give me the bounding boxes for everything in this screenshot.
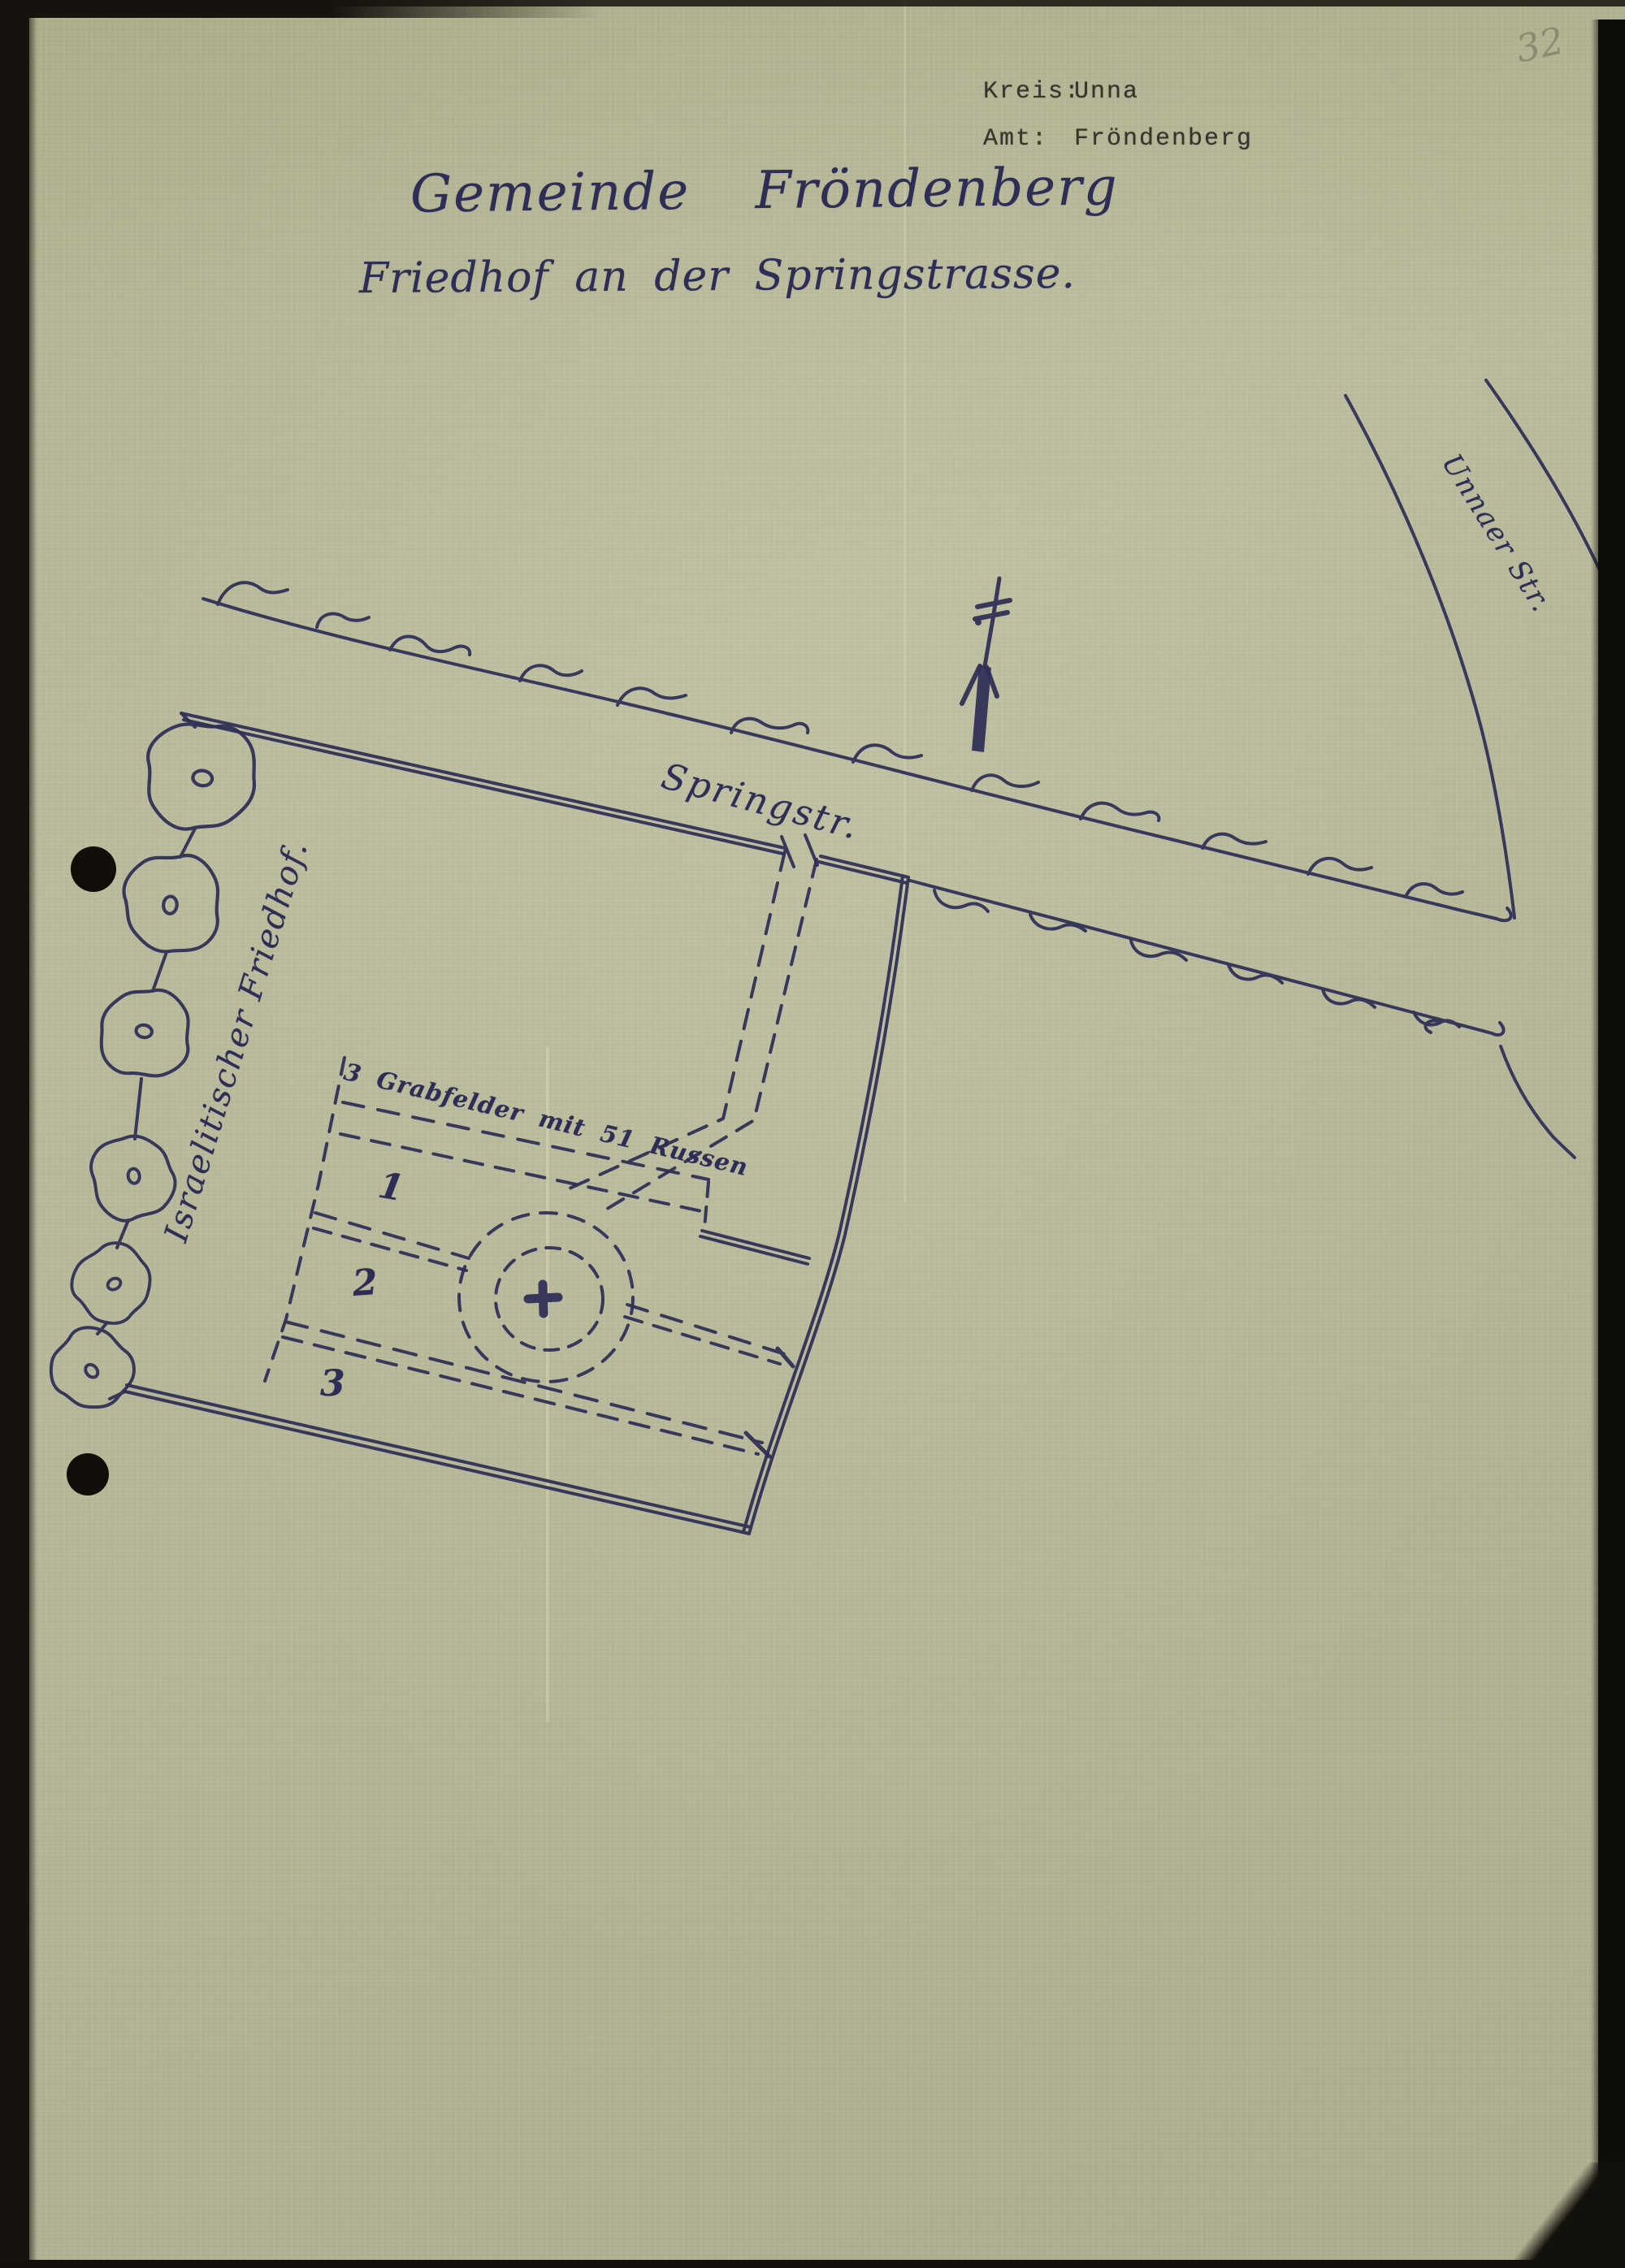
- tree-icon: [94, 981, 197, 1084]
- field-number-3: 3: [320, 1363, 345, 1405]
- scan-edge-bottom: [0, 2260, 1625, 2268]
- amt-label: Amt:: [983, 125, 1074, 153]
- scan-corner-bottom-right: [1487, 2162, 1625, 2268]
- punch-hole: [71, 846, 116, 892]
- binding-shadow-left: [29, 0, 37, 2268]
- punch-hole: [67, 1453, 109, 1495]
- binding-edge-left: [0, 0, 29, 2268]
- header-row-amt: Amt: Fröndenberg: [983, 125, 1253, 153]
- amt-value: Fröndenberg: [1074, 125, 1253, 153]
- tree-icon: [36, 1314, 145, 1425]
- kreis-value: Unna: [1074, 78, 1139, 106]
- scanned-document-page: Kreis: Unna Amt: Fröndenberg 32 Gemeinde…: [0, 0, 1625, 2268]
- scan-edge-right-shadow: [1591, 19, 1598, 2268]
- tree-icon: [139, 716, 262, 838]
- springstrasse-south-edge: [910, 881, 1504, 1035]
- scan-edge-top-left: [0, 0, 601, 18]
- tree-icon: [119, 850, 223, 955]
- memorial-circle: [459, 1213, 633, 1382]
- kreis-label: Kreis:: [983, 78, 1074, 106]
- field-number-2: 2: [351, 1262, 379, 1305]
- header-row-kreis: Kreis: Unna: [983, 78, 1253, 106]
- cemetery-map-drawing: [0, 0, 1625, 2268]
- page-title: Gemeinde Fröndenberg: [410, 157, 1119, 224]
- north-arrow-icon: [962, 578, 1010, 752]
- tree-icon: [61, 1233, 164, 1336]
- scan-edge-right: [1598, 19, 1625, 2268]
- page-subtitle: Friedhof an der Springstrasse.: [359, 249, 1076, 303]
